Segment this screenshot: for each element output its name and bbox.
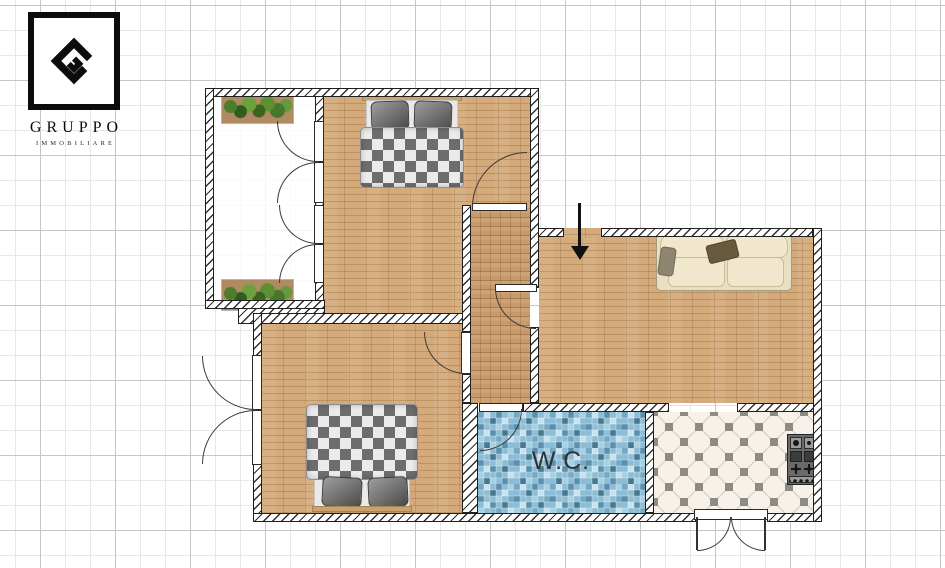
entrance-threshold-floor bbox=[564, 228, 601, 238]
wall-segment bbox=[462, 205, 471, 332]
wall-segment bbox=[462, 403, 478, 513]
wall-segment bbox=[205, 88, 539, 97]
wall-segment bbox=[523, 403, 669, 412]
wall-segment bbox=[530, 88, 539, 288]
wall-segment bbox=[813, 228, 822, 522]
door-swing-arc bbox=[731, 517, 765, 551]
wall-segment bbox=[537, 228, 564, 237]
door-swing-arc bbox=[202, 410, 256, 464]
wall-segment bbox=[601, 228, 813, 237]
wall-segment bbox=[645, 412, 654, 513]
brand-logo: GRUPPO IMMOBILIARE bbox=[18, 12, 130, 147]
wall-segment bbox=[253, 313, 471, 324]
door-swing-arc bbox=[697, 517, 731, 551]
wall-segment bbox=[737, 403, 814, 412]
door-swing-arc bbox=[202, 356, 256, 410]
wc-room-label: W.C. bbox=[500, 447, 622, 476]
wall-segment bbox=[530, 327, 539, 403]
wall-segment bbox=[253, 513, 696, 522]
brand-name: GRUPPO bbox=[18, 119, 130, 137]
brand-tagline: IMMOBILIARE bbox=[18, 140, 130, 147]
wall-segment bbox=[205, 88, 214, 309]
gruppo-diamond-monogram-icon bbox=[28, 12, 120, 110]
floor-plan-page: { "brand": { "name": "GRUPPO", "tagline"… bbox=[0, 0, 945, 568]
wall-segment bbox=[462, 374, 471, 403]
